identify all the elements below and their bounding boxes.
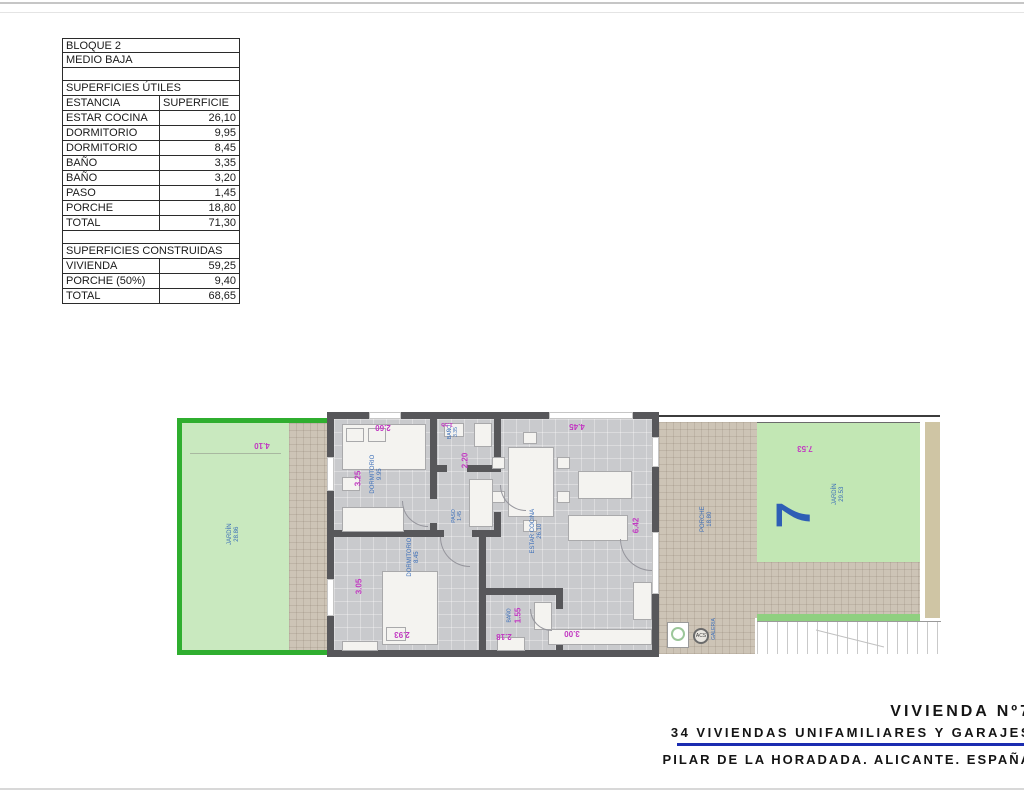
dim-garden-left: 4.10	[242, 441, 282, 450]
title-block: VIVIENDA Nº7 34 VIVIENDAS UNIFAMILIARES …	[663, 703, 1024, 767]
table-row-useful-title: SUPERFICIES ÚTILES	[62, 81, 240, 96]
window	[652, 437, 659, 467]
washer-drum-icon	[671, 627, 685, 641]
terrace-hatch-right	[757, 562, 920, 614]
table-row: BAÑO3,20	[62, 171, 240, 186]
pillow	[346, 428, 364, 442]
table-header-row: ESTANCIA SUPERFICIE	[62, 96, 240, 111]
dim-dorm2-bottom: 2.93	[382, 630, 422, 639]
page-bottom-rule	[0, 788, 1024, 790]
garden-right-label: JARDÍN 29.53	[832, 454, 846, 534]
table-row: PASO1,45	[62, 186, 240, 201]
stairs-area	[757, 621, 941, 654]
table-row-total: TOTAL71,30	[62, 216, 240, 231]
window	[327, 579, 334, 616]
estar-label: ESTAR COCINA 26.10	[530, 491, 544, 571]
bano2-label: BAÑO 1.55	[507, 575, 524, 655]
unit-number: 7	[768, 493, 822, 537]
project-unit-title: VIVIENDA Nº7	[663, 703, 1024, 721]
wall	[494, 512, 501, 537]
paso-label: PASO 1.45	[451, 476, 463, 556]
dim-estar-side: 6.42	[632, 506, 641, 546]
garden-edge-strip	[757, 614, 920, 621]
table-row-block: BLOQUE 2	[62, 38, 240, 53]
wall	[486, 588, 563, 595]
bano1-label: BAÑO 3.35	[447, 412, 459, 452]
stairs-diagonal	[816, 630, 884, 648]
project-location: PILAR DE LA HORADADA. ALICANTE. ESPAÑA	[663, 752, 1024, 767]
garden-left	[177, 418, 327, 655]
col-header-room: ESTANCIA	[63, 96, 160, 110]
title-divider-rule	[677, 743, 1024, 746]
wall	[430, 419, 437, 499]
dim-dorm1-top: 2.60	[363, 423, 403, 432]
terrace-hatch-left	[289, 423, 327, 650]
dim-dorm1-side: 3.25	[354, 459, 363, 499]
sideboard	[578, 471, 632, 499]
floor-plan: 4.10 JARDÍN 28.86	[177, 410, 941, 660]
table-row: VIVIENDA59,25	[62, 259, 240, 274]
chair	[557, 457, 570, 469]
dim-dorm2-side: 3.05	[355, 567, 364, 607]
dim-estar-top: 4.45	[557, 422, 597, 431]
dim-bano1-top: 1.55	[427, 421, 467, 427]
garden-left-label: JARDÍN 28.86	[227, 494, 241, 574]
galeria: ACS GALERIA	[659, 618, 755, 654]
block-name: BLOQUE 2	[63, 39, 239, 52]
table-row: DORMITORIO9,95	[62, 126, 240, 141]
page-top-rule	[0, 2, 1024, 4]
sofa	[568, 515, 628, 541]
table-row: BAÑO3,35	[62, 156, 240, 171]
table-row: ESTAR COCINA26,10	[62, 111, 240, 126]
window	[369, 412, 401, 419]
acs-water-heater-icon: ACS	[693, 628, 709, 644]
plan-sheet: BLOQUE 2 MEDIO BAJA SUPERFICIES ÚTILES E…	[0, 0, 1024, 800]
useful-title: SUPERFICIES ÚTILES	[63, 81, 239, 95]
chair	[557, 491, 570, 503]
dresser	[342, 641, 378, 651]
level-name: MEDIO BAJA	[63, 53, 239, 67]
dim-garden-right: 7.53	[785, 444, 825, 453]
kitchen-sink	[633, 582, 652, 620]
porch-label: PORCHE 18.80	[700, 479, 714, 559]
hall-closet	[469, 479, 493, 527]
dim-bano1-side: 2.20	[461, 441, 470, 481]
dorm2-label: DORMITORIO 8.45	[407, 517, 421, 597]
boundary-wall-strip	[925, 422, 940, 618]
surface-table: BLOQUE 2 MEDIO BAJA SUPERFICIES ÚTILES E…	[62, 38, 240, 304]
table-row: DORMITORIO8,45	[62, 141, 240, 156]
table-row-level: MEDIO BAJA	[62, 53, 240, 68]
dim-bano2-bottom: 2.18	[484, 632, 524, 641]
washbasin	[474, 423, 492, 447]
dimension-line	[190, 453, 281, 454]
table-row-built-title: SUPERFICIES CONSTRUIDAS	[62, 244, 240, 259]
washing-machine	[667, 622, 689, 648]
table-row-spacer	[62, 231, 240, 244]
table-row-total: TOTAL68,65	[62, 289, 240, 304]
page-top-rule-2	[0, 12, 1024, 13]
chair	[492, 457, 505, 469]
dim-bano2-side: 1.55	[514, 575, 524, 655]
dorm1-label: DORMITORIO 9.95	[370, 434, 384, 514]
col-header-area: SUPERFICIE	[160, 96, 239, 110]
sliding-door	[652, 532, 659, 594]
table-row-spacer	[62, 68, 240, 81]
project-name: 34 VIVIENDAS UNIFAMILIARES Y GARAJES	[663, 725, 1024, 740]
table-row: PORCHE (50%)9,40	[62, 274, 240, 289]
built-title: SUPERFICIES CONSTRUIDAS	[63, 244, 239, 258]
table-row: PORCHE18,80	[62, 201, 240, 216]
door-arc	[500, 485, 526, 511]
window	[327, 457, 334, 491]
window	[549, 412, 633, 419]
wall	[556, 595, 563, 609]
garden-left-area: 28.86	[234, 494, 241, 574]
wall	[437, 465, 447, 472]
plot-boundary-line	[659, 415, 940, 417]
chair	[523, 432, 537, 444]
galeria-label: GALERIA	[711, 604, 717, 654]
dim-estar-bottom: 3.00	[552, 629, 592, 638]
